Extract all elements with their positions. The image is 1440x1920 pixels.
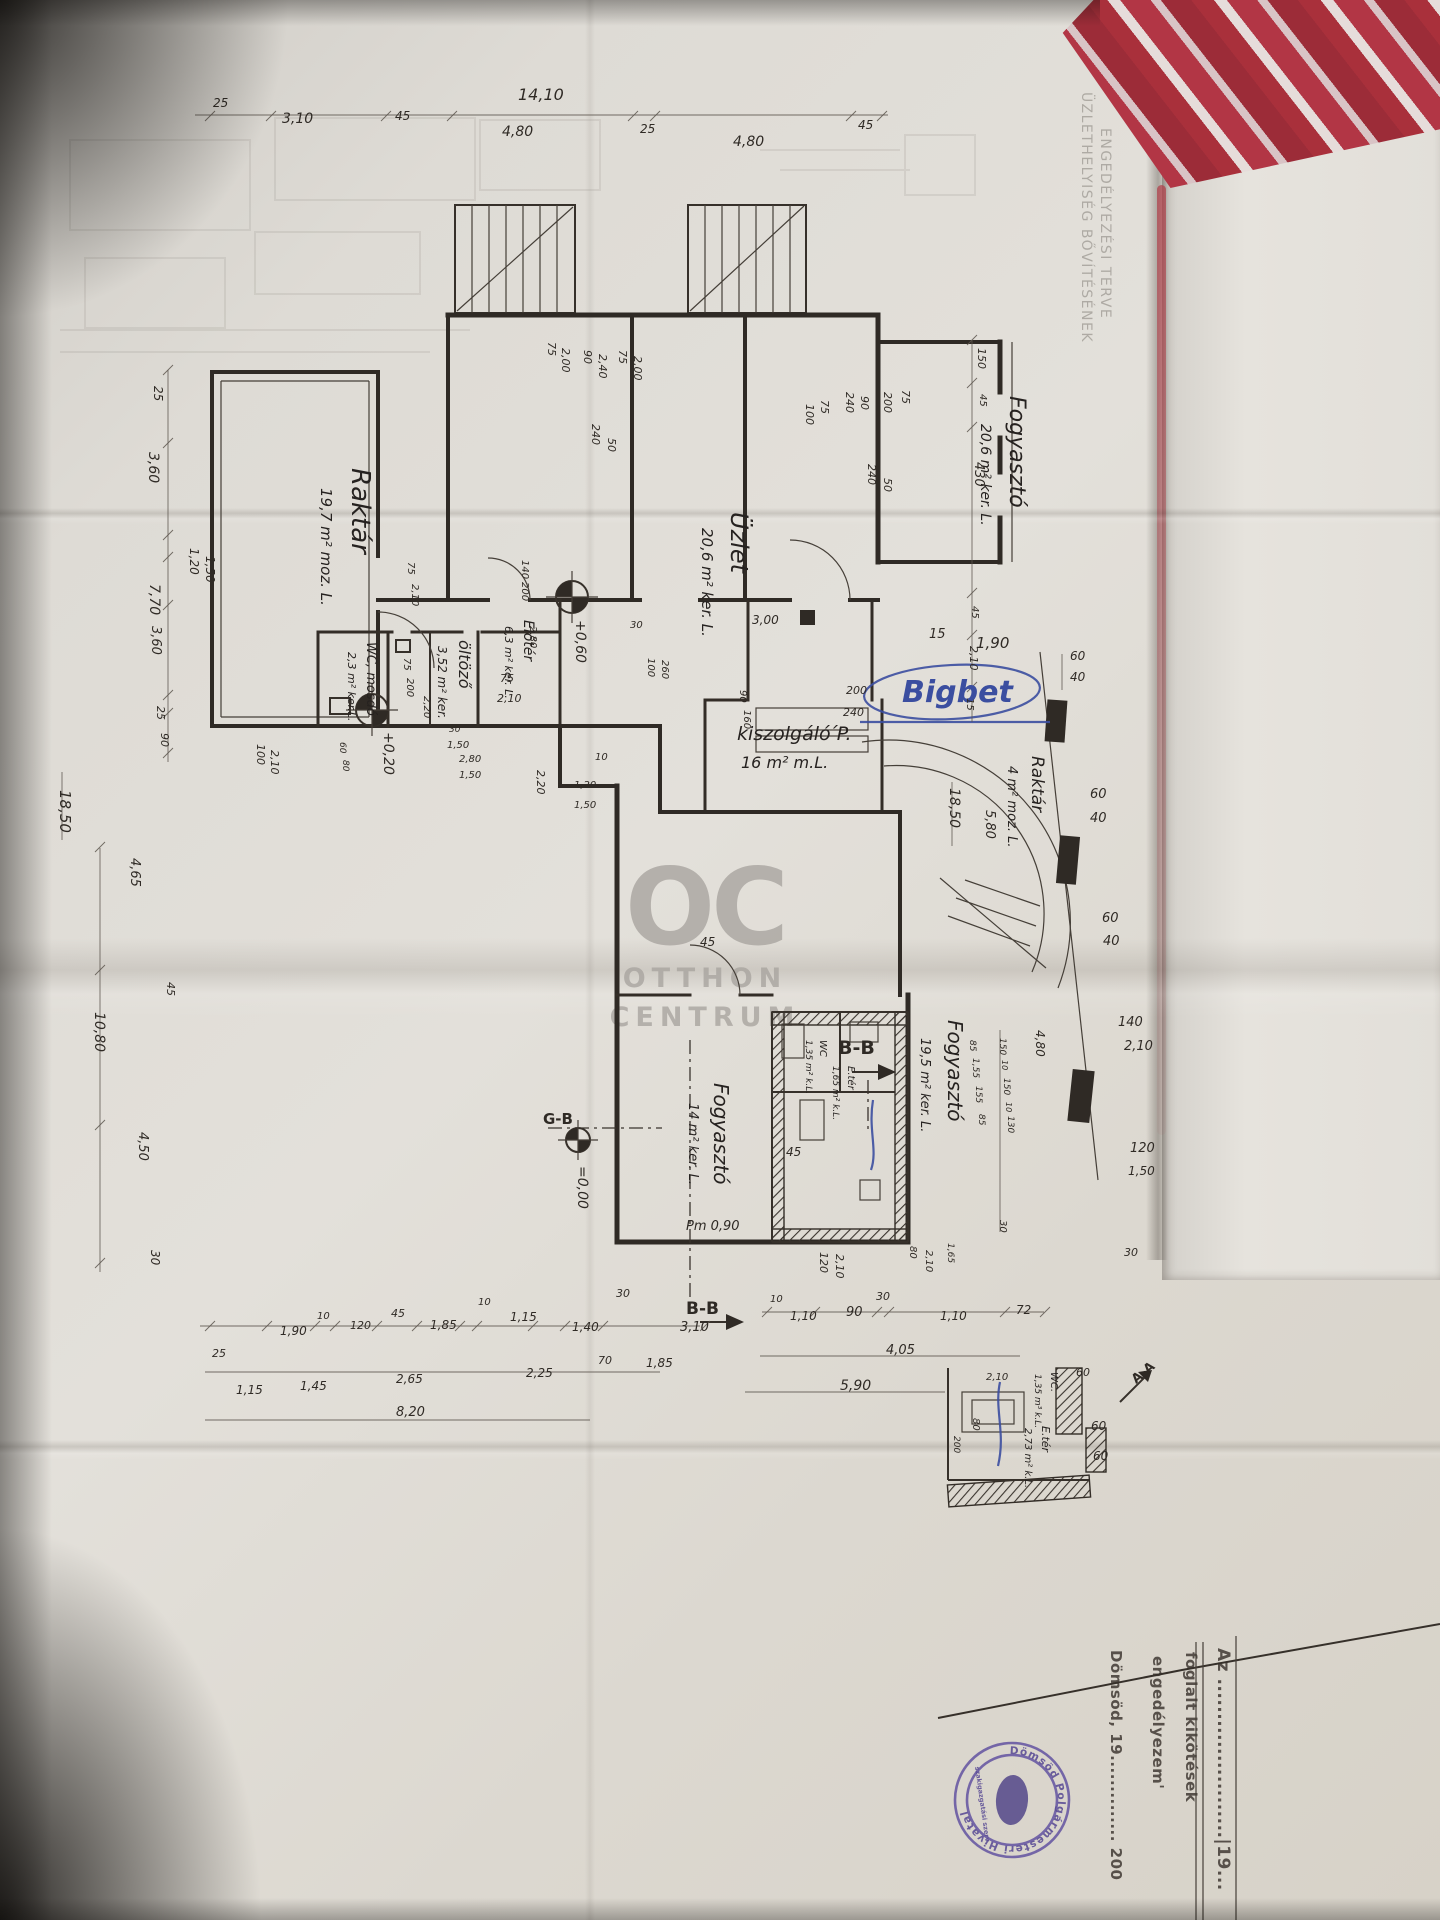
plan-label: 1,90 [280, 1324, 307, 1338]
plan-label: 1,50 [459, 770, 481, 781]
plan-label: 30 [997, 1220, 1008, 1233]
plan-label: 200 [951, 1436, 961, 1453]
plan-label: 10 [770, 1294, 783, 1305]
plan-label: 75 [405, 562, 416, 575]
plan-label: 1,85 [430, 1318, 457, 1332]
plan-label: 1,10 [790, 1309, 817, 1323]
plan-label: 2,20 [421, 696, 432, 718]
plan-label: 70 [598, 1354, 612, 1367]
plan-label: 60 [1090, 787, 1107, 802]
plan-label: 80 [340, 760, 350, 772]
plan-label: 15 [929, 627, 946, 642]
plan-label: 2,00 [631, 356, 644, 381]
plan-label: 1,55 [970, 1058, 980, 1078]
section-lines [548, 1040, 1152, 1402]
plan-label: 155 [973, 1086, 983, 1103]
plan-label: E.tér [845, 1066, 857, 1091]
plan-label: 25 [154, 706, 167, 720]
plan-label: E.tér [1039, 1426, 1052, 1454]
plan-label: Pm 0,90 [686, 1219, 740, 1234]
plan-label: Fogyasztó [1004, 396, 1029, 508]
plan-label: 75 [899, 390, 912, 404]
plan-label: öltöző [455, 640, 474, 689]
plan-label: 60 [1076, 1366, 1090, 1379]
plan-label: 85 [967, 1040, 977, 1052]
plan-label: 90 [581, 350, 594, 364]
plan-label: 75 [401, 658, 412, 671]
plan-label: 1,35 m² k.L. [803, 1040, 813, 1094]
plan-label: 6,3 m² ker. L. [502, 626, 515, 699]
plan-label: 19,5 m² ker. L. [917, 1038, 932, 1132]
plan-label: 1,35 m³ k.L. [1032, 1374, 1042, 1428]
plan-label: 1,50 [574, 800, 596, 811]
plan-label: 85 [976, 1114, 986, 1126]
plan-label: 10 [595, 752, 608, 763]
plan-label: 1,20 [187, 548, 201, 575]
plan-label: 1,65 m² k.L. [830, 1066, 840, 1120]
plan-label: 30 [876, 1290, 890, 1303]
plan-label: Raktár [1027, 756, 1047, 813]
plan-label: 2,00 [559, 348, 572, 373]
plan-label: 2,80 [459, 754, 481, 765]
plan-label: 1,50 [203, 556, 217, 583]
plan-label: 16 m² m.L. [741, 753, 828, 772]
plan-label: 1,85 [646, 1356, 673, 1370]
plan-label: 2,10 [986, 1372, 1008, 1383]
plan-label: Üzlet [725, 512, 754, 575]
plan-label: 60 [1102, 911, 1119, 926]
photo-of-floor-plan: OC OTTHON CENTRUM [0, 0, 1440, 1920]
shadow-left-edge [0, 0, 52, 1920]
plan-label: 100 [254, 744, 267, 765]
municipal-stamp: Dömsöd Polgármesteri Hivatal szakigazgat… [948, 1736, 1077, 1865]
plan-label: 30 [630, 620, 643, 631]
plan-label: 30 [616, 1287, 630, 1300]
plan-label: 3,00 [752, 613, 779, 627]
plan-label: 3,60 [148, 626, 163, 655]
plan-label: 130 [1005, 1116, 1015, 1133]
plan-label: 2,10 [1124, 1039, 1153, 1054]
plan-label: 30 [1124, 1246, 1138, 1259]
plan-label: Raktár [345, 468, 375, 556]
plan-label: 15 [964, 698, 975, 711]
plan-label: 10 [478, 1297, 491, 1308]
plan-label: 2,3 m² ker.L. [345, 652, 358, 721]
plan-label: 20,6 m² ker. L. [698, 528, 716, 637]
plan-label: 45 [858, 118, 873, 132]
plan-label: 10,80 [91, 1012, 107, 1052]
plan-label: 160 [741, 710, 752, 729]
plan-label: 150 [997, 1038, 1007, 1055]
plan-label: 100 [803, 404, 816, 425]
plan-label: 19,7 m² moz. L. [317, 488, 335, 606]
plan-label: 1,10 [940, 1309, 967, 1323]
plan-label: Fogyasztó [943, 1020, 967, 1122]
plan-label: 10 [1004, 1102, 1013, 1112]
plan-label: 4,05 [886, 1343, 915, 1358]
plan-label: 150 [1001, 1078, 1011, 1095]
level-marker [546, 571, 598, 623]
plan-label: 30 [449, 725, 461, 735]
plan-label: 14 m² ker. L. [685, 1103, 700, 1185]
plan-label: 1,45 [300, 1379, 327, 1393]
plan-label: ÜZLETHELYISÉG BŐVÍTÉSÉNEK [1078, 92, 1096, 343]
plan-label: B-B [686, 1299, 719, 1319]
plan-label: 45 [969, 606, 980, 619]
plan-label: 50 [605, 438, 618, 452]
plan-label: +0,60 [572, 620, 588, 663]
plan-label: 1,50 [447, 740, 469, 751]
plan-label: 2,25 [526, 1366, 553, 1380]
plan-label: 45 [786, 1145, 801, 1159]
plan-label: 75 [500, 672, 514, 685]
plan-label: 8,20 [396, 1405, 425, 1420]
plan-label: Fogyasztó [709, 1083, 733, 1185]
plan-label: 90 [737, 690, 748, 703]
shadow-bottom-edge [0, 1898, 1440, 1920]
plan-label: 240 [843, 706, 864, 719]
plan-label: 240 [865, 464, 878, 485]
plan-label: 4 m² moz. L. [1004, 766, 1019, 848]
plan-label: 18,50 [946, 788, 962, 828]
plan-label: 90 [846, 1305, 863, 1320]
plan-label: 240 [589, 424, 602, 445]
plan-label: 140 [1118, 1015, 1143, 1030]
plan-label: WC, mosdó [363, 642, 378, 716]
plan-label: 3,52 m² ker. [435, 646, 449, 719]
plan-label: kiszolgáló ́P. [737, 723, 852, 745]
plan-label: 1,40 [572, 1320, 599, 1334]
plan-label: 80 [970, 1418, 981, 1431]
plan-label: 30 [148, 1250, 162, 1266]
plan-label: =0,00 [574, 1166, 590, 1209]
plan-label: 60 [337, 742, 347, 754]
plan-label: 2,40 [596, 354, 609, 379]
plan-label: 1,15 [510, 1310, 537, 1324]
shadow-top-edge [0, 0, 1100, 26]
plan-label: 2,10 [268, 750, 281, 775]
plan-label: 2,65 [396, 1372, 423, 1386]
plan-label: 1,50 [1128, 1164, 1155, 1178]
plan-label: 200 [404, 678, 415, 697]
plan-label: 25 [151, 386, 165, 401]
plan-label: 14,10 [518, 85, 564, 104]
plan-label: 45 [700, 935, 715, 949]
blue-pen-mark [871, 1100, 874, 1170]
plan-label: 120 [817, 1252, 830, 1273]
plan-label: 72 [1016, 1303, 1031, 1317]
plan-label: G-B [543, 1110, 573, 1128]
plan-label: 140 [519, 560, 530, 579]
plan-label: 2,10 [967, 646, 980, 671]
plan-label: 45 [391, 1307, 405, 1320]
plan-label: 4,80 [1033, 1030, 1047, 1057]
plan-label: 200 [881, 392, 894, 413]
plan-label: 100 [645, 658, 656, 677]
plan-label: B-B [838, 1037, 875, 1059]
plan-label: 50 [881, 478, 894, 492]
plan-label: WC. [1048, 1372, 1059, 1392]
plan-label: 3,10 [680, 1320, 709, 1335]
plan-label: 10 [317, 1311, 330, 1322]
plan-label: 60 [1070, 649, 1086, 663]
plan-label: 240 [843, 392, 856, 413]
plan-label: 7,70 [146, 584, 162, 615]
plan-label: 80 [907, 1246, 918, 1259]
plan-label: 40 [1103, 934, 1120, 949]
plan-label: Az .......................|19... [1213, 1648, 1233, 1891]
plan-label: 200 [519, 582, 530, 601]
plan-label: ENGEDÉLYEZÉSI TERVE [1097, 128, 1114, 319]
plan-label: 2,80 [527, 626, 538, 648]
plan-label: 45 [977, 394, 988, 407]
plan-label: 75 [545, 342, 558, 356]
plan-label: 2,10 [833, 1254, 846, 1279]
stairs-top [455, 205, 806, 313]
plan-label: 1,20 [574, 780, 596, 791]
plan-label: 4,80 [502, 124, 533, 140]
plan-label: Bigbet [902, 675, 1014, 710]
plan-label: 10 [1000, 1060, 1009, 1070]
plan-label: 40 [1070, 670, 1086, 684]
plan-label: 3,60 [145, 452, 161, 483]
plan-label: 25 [640, 122, 655, 136]
plan-label: WC [817, 1040, 828, 1057]
plan-label: 2,10 [923, 1250, 934, 1272]
plan-label: 260 [659, 660, 670, 679]
plan-label: 60 [1093, 1449, 1109, 1463]
plan-label: 200 [846, 684, 867, 697]
plan-label: 1,90 [976, 634, 1009, 652]
plan-label: 75 [818, 400, 831, 414]
plan-label: 5,80 [982, 810, 997, 839]
plan-label: 90 [158, 733, 171, 747]
plan-label: 90 [858, 396, 871, 410]
plan-label: 1,15 [236, 1383, 263, 1397]
plan-label: 4,50 [135, 1132, 150, 1161]
plan-label: 25 [212, 1347, 226, 1360]
plan-label: 120 [350, 1319, 371, 1332]
plan-label: 120 [1130, 1141, 1155, 1156]
plan-label: 75 [616, 350, 629, 364]
plan-label: 150 [975, 348, 988, 369]
plan-label: 5,90 [840, 1378, 871, 1394]
plan-label: 18,50 [56, 790, 74, 833]
plan-label: A-A [1129, 1359, 1158, 1387]
plan-label: 2,73 m² k.L. [1022, 1428, 1033, 1488]
plan-label: 430 [971, 462, 986, 487]
plan-label: foglalt kikötések [1182, 1652, 1200, 1803]
plan-label: 40 [1090, 811, 1107, 826]
walls [212, 315, 1012, 1242]
plan-label: 45 [395, 109, 410, 123]
plan-label: 2,10 [409, 584, 420, 606]
plan-label: 4,65 [127, 858, 142, 887]
plan-label: 60 [1091, 1419, 1107, 1433]
plan-label: 2,10 [497, 692, 522, 705]
plan-label: +0,20 [380, 732, 396, 775]
plan-label: 1,65 [945, 1243, 955, 1263]
plan-label: 45 [164, 982, 177, 996]
plan-label: 4,80 [733, 134, 764, 150]
plan-label: 2,20 [534, 770, 547, 795]
